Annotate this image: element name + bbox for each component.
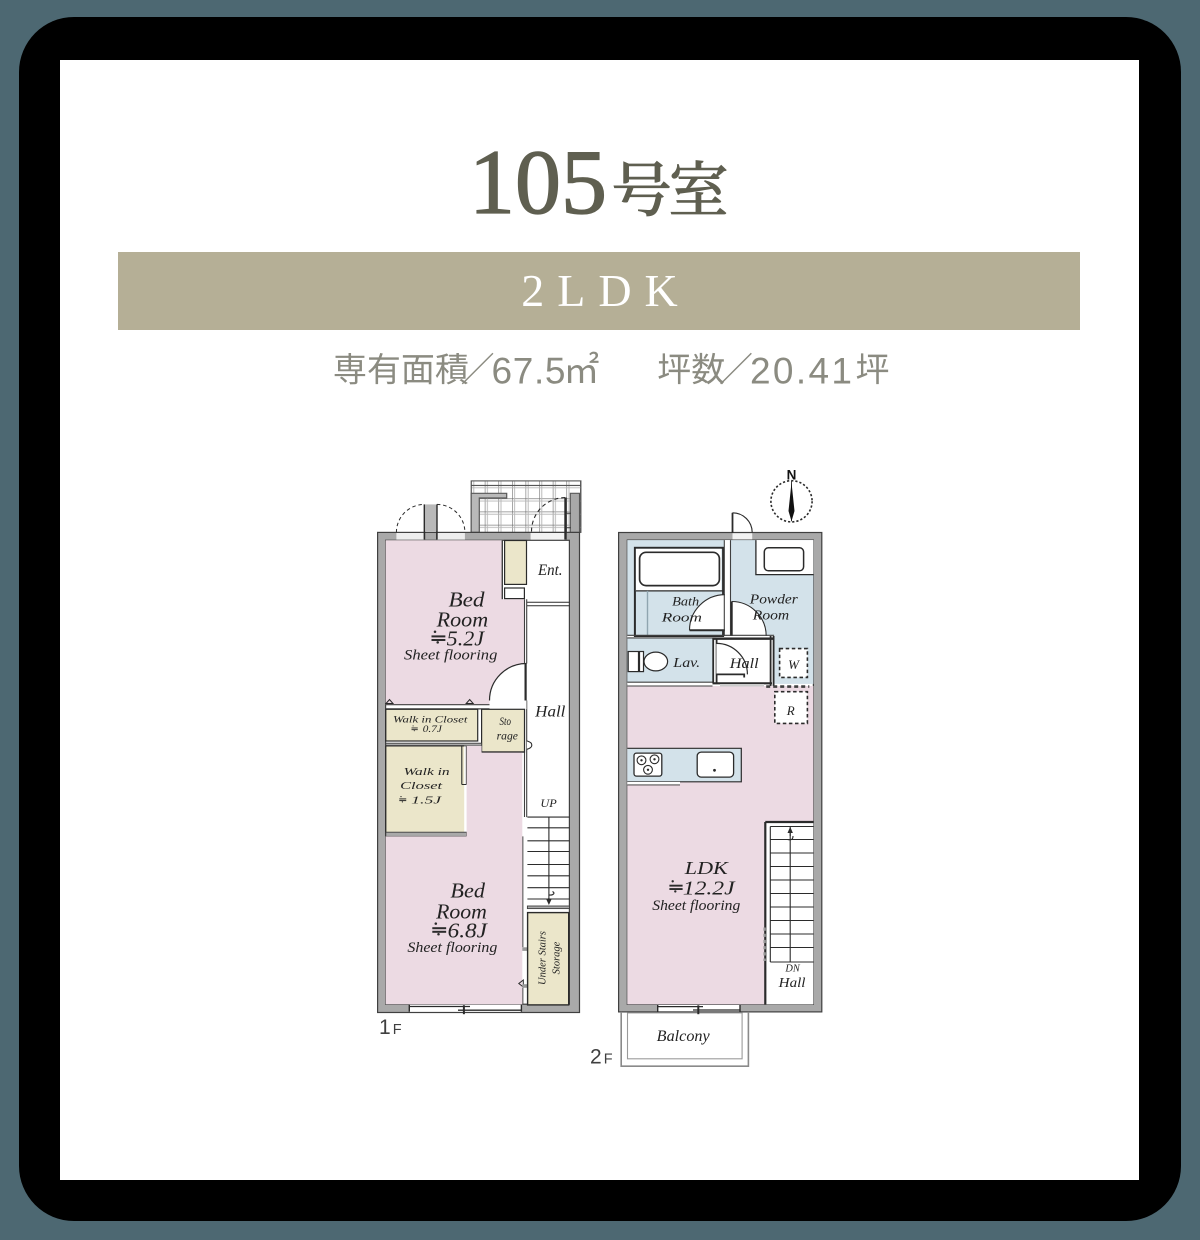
svg-text:20.41: 20.41 xyxy=(750,351,852,392)
svg-text:LDK: LDK xyxy=(684,858,729,878)
svg-text:1.5J: 1.5J xyxy=(411,796,443,807)
svg-text:67.5: 67.5 xyxy=(492,351,566,392)
svg-text:Sheet flooring: Sheet flooring xyxy=(404,648,498,664)
svg-text:105: 105 xyxy=(469,131,607,233)
svg-text:N: N xyxy=(787,468,797,483)
svg-text:Walk in Closet: Walk in Closet xyxy=(393,716,468,726)
svg-text:Hall: Hall xyxy=(534,704,566,721)
svg-text:Sto: Sto xyxy=(500,714,512,728)
svg-text:R: R xyxy=(786,703,795,718)
svg-text:Sheet flooring: Sheet flooring xyxy=(407,940,498,956)
svg-text:0.7J: 0.7J xyxy=(423,725,443,735)
svg-text:Powder: Powder xyxy=(749,592,799,607)
svg-text:Balcony: Balcony xyxy=(657,1028,710,1045)
svg-text:UP: UP xyxy=(540,796,557,810)
svg-text:Walk in: Walk in xyxy=(404,767,450,778)
svg-text:12.2J: 12.2J xyxy=(683,878,736,900)
svg-text:Under Stairs: Under Stairs xyxy=(538,931,549,985)
svg-text:Hall: Hall xyxy=(778,976,806,991)
svg-text:DN: DN xyxy=(784,963,800,975)
svg-text:Lav.: Lav. xyxy=(672,656,700,671)
svg-text:Storage: Storage xyxy=(552,941,563,974)
svg-text:rage: rage xyxy=(497,728,519,742)
svg-text:Sheet flooring: Sheet flooring xyxy=(652,898,741,914)
svg-text:Room: Room xyxy=(752,609,790,624)
svg-text:Bath: Bath xyxy=(672,593,699,608)
svg-text:W: W xyxy=(788,657,800,672)
svg-text:Ent.: Ent. xyxy=(537,562,562,579)
svg-text:Hall: Hall xyxy=(729,656,759,672)
svg-text:Room: Room xyxy=(660,610,702,625)
svg-text:2LDK: 2LDK xyxy=(521,265,691,316)
svg-text:Closet: Closet xyxy=(400,781,444,792)
